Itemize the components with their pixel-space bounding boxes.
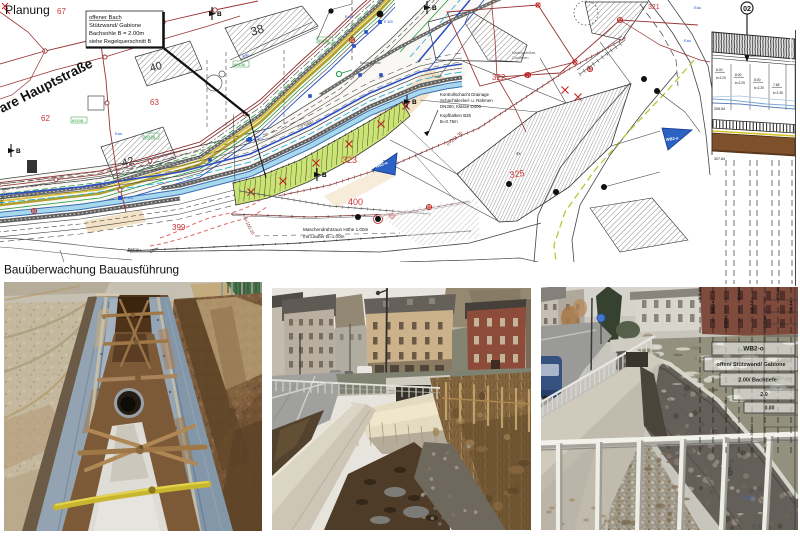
svg-text:399: 399 <box>172 223 186 232</box>
svg-text:mit Laufter B=1.00m: mit Laufter B=1.00m <box>303 234 345 239</box>
svg-text:Schachtdeckel- u. Rahmen: Schachtdeckel- u. Rahmen <box>440 98 493 103</box>
svg-text:b=2.35: b=2.35 <box>773 91 783 95</box>
svg-text:69158: 69158 <box>318 38 330 43</box>
svg-text:400: 400 <box>348 197 363 207</box>
svg-text:8.00: 8.00 <box>754 78 761 82</box>
svg-text:WB2-o: WB2-o <box>743 345 764 352</box>
svg-text:Nadelgehölze,: Nadelgehölze, <box>512 51 536 55</box>
svg-text:307.84: 307.84 <box>714 157 725 161</box>
svg-text:321: 321 <box>648 4 660 11</box>
svg-text:306.44: 306.44 <box>749 423 754 436</box>
svg-text:306.44: 306.44 <box>698 287 703 300</box>
svg-text:63: 63 <box>150 98 159 107</box>
svg-text:DN300, Klasse D400: DN300, Klasse D400 <box>440 104 482 109</box>
svg-text:308.54: 308.54 <box>714 107 725 111</box>
svg-text:322: 322 <box>492 73 506 82</box>
svg-text:b=2.25: b=2.25 <box>735 81 745 85</box>
svg-text:Eau: Eau <box>694 5 701 10</box>
svg-text:325: 325 <box>509 168 525 180</box>
svg-text:Eau: Eau <box>115 131 122 136</box>
svg-text:306.44: 306.44 <box>711 301 716 314</box>
svg-text:02: 02 <box>743 6 751 13</box>
svg-text:B: B <box>217 11 222 18</box>
svg-text:B: B <box>16 148 21 155</box>
svg-text:306.44: 306.44 <box>763 315 768 328</box>
svg-text:69158: 69158 <box>234 62 246 67</box>
svg-text:4x: 4x <box>516 151 522 156</box>
svg-text:8.00: 8.00 <box>735 73 742 77</box>
svg-text:Fluhe: Fluhe <box>432 75 442 79</box>
svg-text:62: 62 <box>41 114 50 123</box>
svg-text:offen/ Stützwand/ Gabione: offen/ Stützwand/ Gabione <box>716 362 785 368</box>
svg-text:310.44: 310.44 <box>750 54 761 58</box>
svg-text:Stützwand/ Gabione: Stützwand/ Gabione <box>89 23 141 29</box>
svg-text:323: 323 <box>342 155 357 165</box>
svg-text:Kopfbalken B25: Kopfbalken B25 <box>440 113 472 118</box>
svg-text:Bauüberwachung Bauausführung: Bauüberwachung Bauausführung <box>4 263 179 277</box>
svg-text:Eau: Eau <box>684 38 691 43</box>
svg-text:306.44: 306.44 <box>737 287 742 300</box>
svg-text:E 300: E 300 <box>254 137 263 141</box>
svg-text:Eau: Eau <box>345 14 352 19</box>
svg-text:b=2.30: b=2.30 <box>754 86 764 90</box>
svg-text:B: B <box>432 5 437 12</box>
svg-text:B: B <box>412 99 417 106</box>
svg-text:0.00: 0.00 <box>765 405 775 411</box>
svg-text:69158: 69158 <box>144 134 156 139</box>
svg-text:2.00/ Bachtiefe: 2.00/ Bachtiefe <box>738 377 777 383</box>
svg-text:69158: 69158 <box>72 118 84 123</box>
svg-text:Kontrollschacht Drainage: Kontrollschacht Drainage <box>440 92 490 97</box>
svg-text:0.00: 0.00 <box>742 496 754 502</box>
svg-text:B: B <box>322 172 327 179</box>
svg-text:Baumschutz: Baumschutz <box>360 61 381 65</box>
svg-text:8.00: 8.00 <box>716 68 723 72</box>
svg-text:Planung: Planung <box>5 3 50 17</box>
svg-text:Maschendrahtzaun Höhe 1.00m: Maschendrahtzaun Höhe 1.00m <box>303 227 369 232</box>
svg-text:7.65: 7.65 <box>773 83 780 87</box>
svg-text:Coniferen: Coniferen <box>512 56 528 60</box>
svg-text:Bachsohle B = 2.00m: Bachsohle B = 2.00m <box>89 31 144 37</box>
svg-text:E 300: E 300 <box>384 20 393 24</box>
svg-text:306.44: 306.44 <box>723 399 728 412</box>
svg-text:B=0.75m: B=0.75m <box>440 119 458 124</box>
svg-text:306.44: 306.44 <box>776 287 781 300</box>
svg-text:Beton: Beton <box>128 247 140 252</box>
svg-text:siehe Regelquerschnitt B: siehe Regelquerschnitt B <box>89 39 151 45</box>
svg-text:306.44: 306.44 <box>724 315 729 328</box>
svg-text:306.44: 306.44 <box>750 301 755 314</box>
svg-text:67: 67 <box>57 7 66 16</box>
svg-text:b=2.20: b=2.20 <box>716 76 726 80</box>
svg-text:E 300: E 300 <box>124 196 133 200</box>
